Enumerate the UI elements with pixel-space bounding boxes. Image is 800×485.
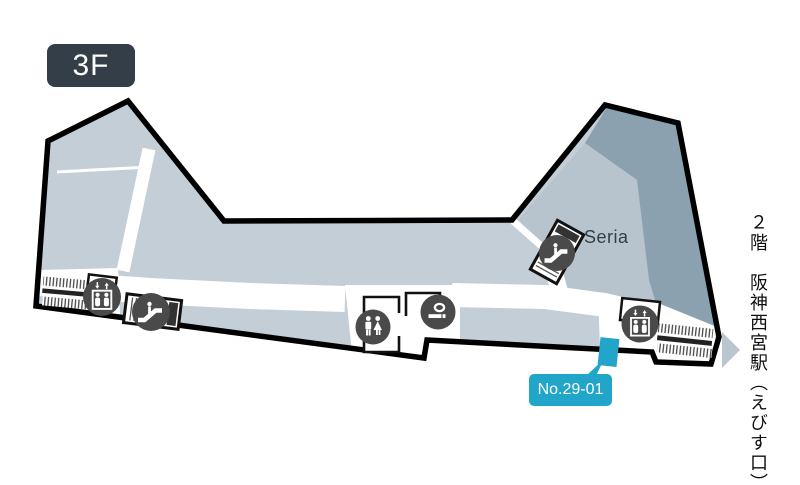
- store-label-seria: Seria: [584, 227, 629, 248]
- stairs-right-icon: [656, 323, 715, 358]
- exit-arrow-icon: [722, 332, 740, 368]
- smoking-area-icon: [421, 295, 456, 330]
- elevator-right-icon: [622, 306, 659, 343]
- floor-map-page: 3F Seria No.29-01 ２階 阪神西宮駅（えびす口）: [0, 0, 800, 485]
- floor-badge: 3F: [47, 44, 135, 87]
- booth-tag-label: No.29-01: [538, 381, 604, 399]
- booth-tag[interactable]: No.29-01: [529, 374, 612, 406]
- escalator-right-icon: [539, 235, 575, 271]
- escalator-left-icon: [132, 293, 170, 331]
- floor-badge-label: 3F: [72, 49, 109, 83]
- restroom-icon: [356, 310, 391, 345]
- exit-station-label: ２階 阪神西宮駅（えびす口）: [744, 213, 770, 485]
- elevator-left-icon: [83, 278, 121, 316]
